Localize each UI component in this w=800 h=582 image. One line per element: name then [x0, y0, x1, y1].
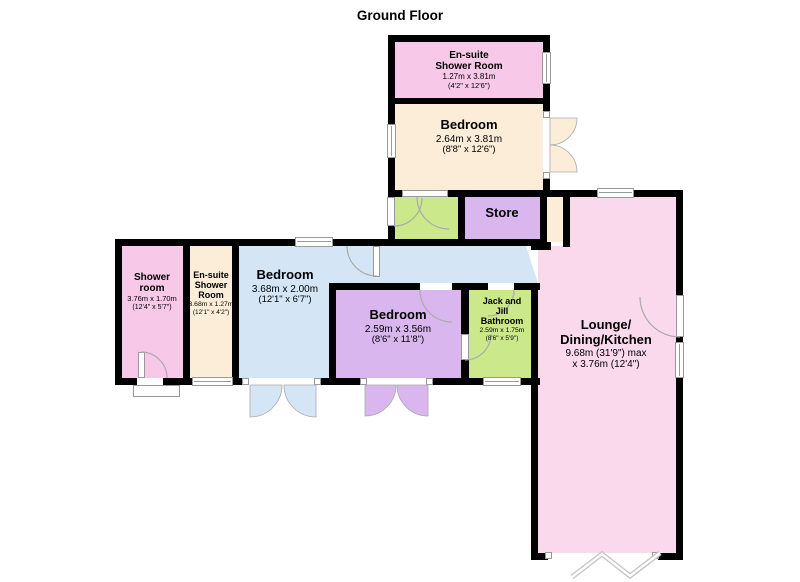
- bedroom-purple-french-door: [397, 385, 428, 416]
- window: [387, 124, 396, 158]
- wall: [115, 239, 122, 385]
- hinge-cap: [360, 378, 367, 385]
- door-leaf: [676, 295, 684, 337]
- wall: [395, 98, 543, 104]
- wall: [395, 239, 540, 246]
- lounge-area-left: [538, 246, 578, 553]
- door-leaf: [373, 246, 380, 277]
- window: [192, 377, 233, 386]
- door-leaf: [387, 197, 395, 226]
- bedroom-mid-label: Bedroom 3.68m x 2.00m (12'1" x 6'7"): [220, 268, 350, 305]
- lounge-open-door-leaves: [572, 553, 660, 577]
- hinge-cap: [543, 172, 550, 179]
- room-name: Bedroom: [399, 118, 539, 133]
- door-leaf: [138, 352, 145, 378]
- room-dims-imperial: x 3.76m (12'4"): [551, 359, 661, 370]
- wall: [540, 197, 547, 245]
- room-dims-imperial: (12'1" x 4'2"): [187, 309, 235, 316]
- window: [597, 188, 634, 198]
- ensuite-top-label: En-suite Shower Room 1.27m x 3.81m (4'2"…: [434, 50, 504, 91]
- lounge-open-doors: [572, 553, 660, 577]
- room-name: Bedroom: [220, 268, 350, 283]
- room-dims-imperial: (8'8" x 12'6"): [399, 145, 539, 156]
- bedroom-mid-area: [239, 246, 329, 378]
- room-name: Store: [462, 206, 542, 221]
- plan-title: Ground Floor: [0, 8, 800, 23]
- wall: [448, 190, 570, 197]
- room-dims-metric: 3.76m x 1.70m: [122, 295, 182, 303]
- wall: [658, 553, 683, 560]
- room-name: Lounge/ Dining/Kitchen: [551, 318, 661, 347]
- hinge-cap: [545, 552, 552, 559]
- wall: [531, 283, 538, 553]
- room-dims-imperial: (4'2" x 12'6"): [434, 82, 504, 90]
- hinge-cap: [242, 378, 249, 385]
- hinge-cap: [426, 378, 433, 385]
- door-step: [133, 385, 180, 397]
- wall: [452, 283, 488, 290]
- shower-room-label: Shower room 3.76m x 1.70m (12'4" x 5'7"): [122, 272, 182, 312]
- hall-area: [395, 197, 458, 239]
- floorplan-canvas: Ground Floor: [0, 0, 800, 582]
- window: [295, 237, 333, 247]
- window: [483, 377, 521, 386]
- room-dims-imperial: (12'4" x 5'7"): [122, 304, 182, 312]
- room-name: Shower room: [122, 272, 182, 294]
- room-name: En-suite Shower Room: [434, 50, 504, 72]
- hinge-cap: [314, 378, 321, 385]
- room-name: Jack and Jill Bathroom: [478, 296, 526, 326]
- room-name: Bedroom: [333, 308, 463, 323]
- wall: [115, 378, 137, 385]
- wall: [563, 190, 570, 247]
- jack-jill-label: Jack and Jill Bathroom 2.59m x 1.75m (8'…: [478, 296, 526, 342]
- bedroom-purple-french-door: [365, 385, 396, 416]
- wall: [115, 239, 395, 246]
- bedroom-purple-label: Bedroom 2.59m x 3.56m (8'6" x 11'8"): [333, 308, 463, 345]
- window: [542, 52, 551, 84]
- room-dims-metric: 9.68m (31'9") max: [551, 348, 661, 359]
- hinge-cap: [543, 111, 550, 118]
- closet-area: [547, 197, 563, 242]
- shower-room-area: [122, 246, 183, 378]
- lounge-open-door-leaves: [572, 553, 660, 577]
- wall: [388, 190, 402, 197]
- room-dims-imperial: (8'6" x 11'8"): [333, 335, 463, 346]
- room-dims-metric: 2.59m x 1.75m: [478, 327, 526, 335]
- wall: [514, 283, 540, 290]
- room-dims-imperial: (12'1" x 6'7"): [220, 295, 350, 306]
- bedroom-top-label: Bedroom 2.64m x 3.81m (8'8" x 12'6"): [399, 118, 539, 155]
- bedroom-top-french-door: [550, 145, 577, 172]
- lounge-label: Lounge/ Dining/Kitchen 9.68m (31'9") max…: [551, 318, 661, 370]
- wall: [461, 360, 469, 385]
- bedroom-top-french-door: [550, 118, 577, 145]
- wall: [388, 35, 550, 42]
- window: [675, 342, 684, 378]
- bedroom-mid-french-door: [284, 385, 316, 417]
- lounge-area: [570, 197, 676, 553]
- wall: [318, 378, 363, 385]
- wall: [676, 190, 683, 295]
- bedroom-mid-french-door: [250, 385, 282, 417]
- hinge-cap: [652, 552, 659, 559]
- room-dims-imperial: (8'6" x 5'9"): [478, 335, 526, 342]
- door-leaf: [402, 190, 448, 197]
- store-label: Store: [462, 206, 542, 221]
